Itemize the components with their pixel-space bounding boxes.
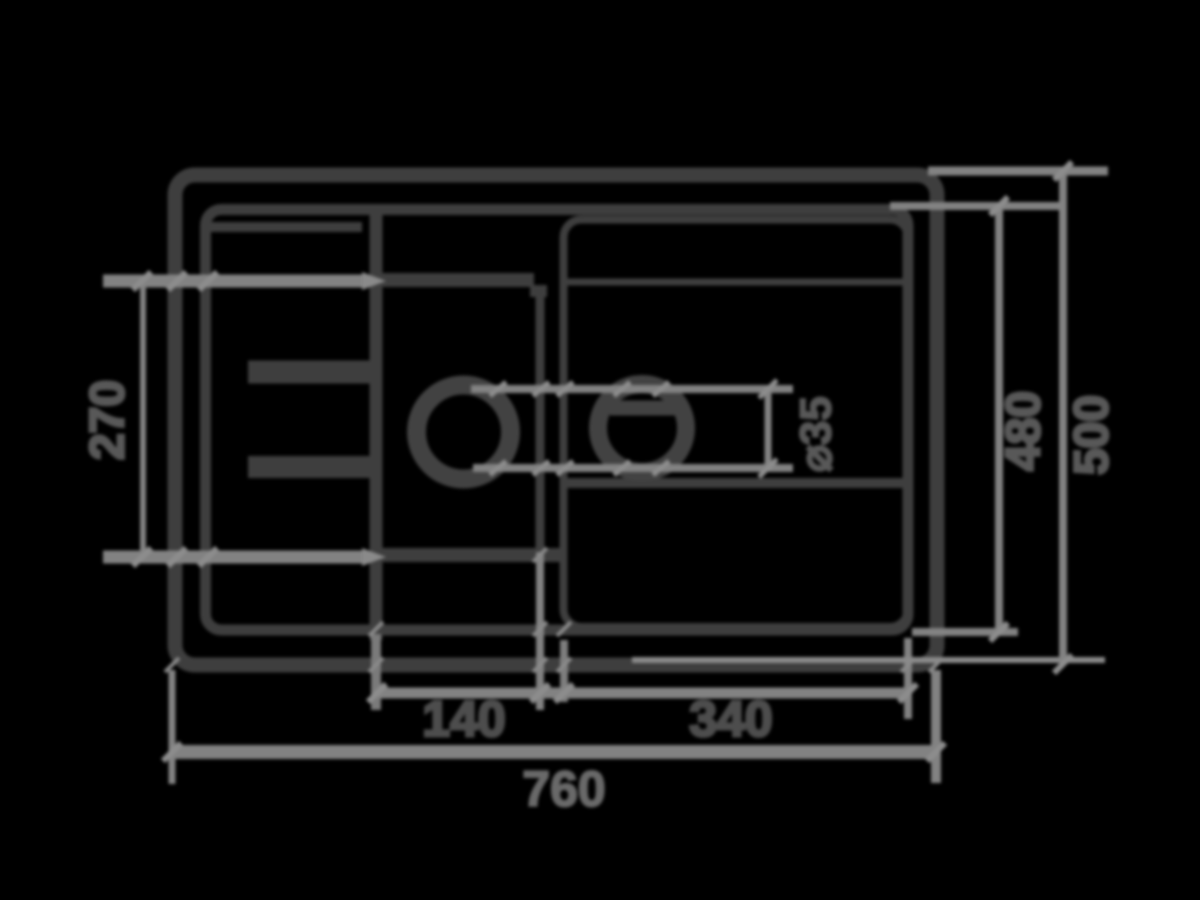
svg-text:480: 480 (998, 391, 1051, 471)
svg-text:760: 760 (522, 761, 605, 817)
svg-text:500: 500 (1066, 395, 1119, 475)
svg-text:270: 270 (82, 380, 135, 460)
svg-text:⌀35: ⌀35 (792, 396, 841, 471)
svg-text:340: 340 (689, 691, 772, 747)
svg-text:140: 140 (422, 691, 505, 747)
